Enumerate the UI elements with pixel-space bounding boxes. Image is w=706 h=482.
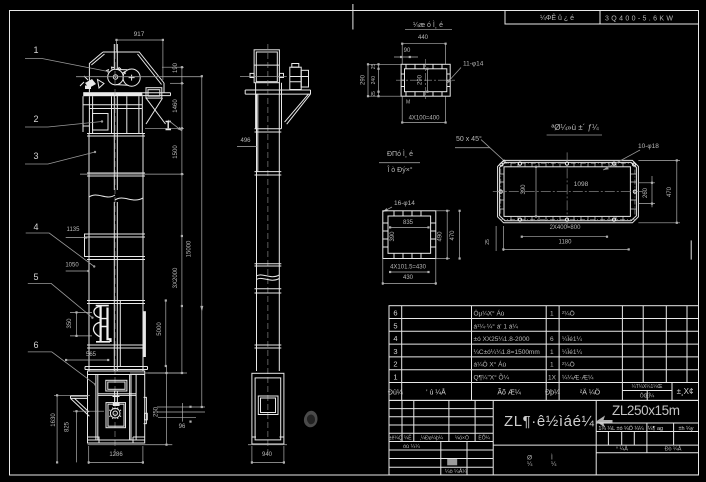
svg-text:¼: ¼ <box>551 461 557 468</box>
svg-text:¼ö ¼Å¼: ¼ö ¼Å¼ <box>445 468 467 475</box>
svg-text:M: M <box>406 100 410 106</box>
svg-text:Ðù¼: Ðù¼ <box>388 390 403 397</box>
svg-text:²Ä ¼Ö: ²Ä ¼Ö <box>580 389 601 397</box>
svg-text:óù ¼¼: óù ¼¼ <box>403 444 420 450</box>
svg-text:4X101.5=430: 4X101.5=430 <box>390 265 427 271</box>
svg-text:ÕŒÎ¼: ÕŒÎ¼ <box>640 393 655 400</box>
svg-text:²¼Ö: ²¼Ö <box>562 361 575 369</box>
svg-text:¼: ¼ <box>527 461 533 468</box>
svg-text:430: 430 <box>403 275 414 281</box>
svg-text:240: 240 <box>371 76 377 85</box>
svg-text:835: 835 <box>403 220 414 226</box>
svg-text:6: 6 <box>393 309 397 318</box>
svg-text:5000: 5000 <box>157 322 163 336</box>
svg-text:390: 390 <box>390 231 396 242</box>
svg-text:3Q400-5.6KW: 3Q400-5.6KW <box>605 16 673 23</box>
svg-text:5: 5 <box>393 321 397 330</box>
svg-text:¼C±ó¼¼1.8=1500mm: ¼C±ó¼¼1.8=1500mm <box>474 349 540 356</box>
svg-text:6: 6 <box>550 336 554 343</box>
svg-text:1: 1 <box>33 45 38 55</box>
svg-text:Ôµ¼X° Áù: Ôµ¼X° Áù <box>474 309 505 318</box>
svg-text:290: 290 <box>418 74 424 85</box>
svg-text:25: 25 <box>371 64 377 70</box>
svg-text:Q¶¼"X° Õ¼: Q¶¼"X° Õ¼ <box>474 373 510 382</box>
svg-text:15000: 15000 <box>187 240 193 257</box>
svg-text:440: 440 <box>418 35 429 41</box>
svg-text:2: 2 <box>393 360 397 369</box>
svg-text:Î ò Ðý×°: Î ò Ðý×° <box>386 165 412 174</box>
svg-text:1180: 1180 <box>559 240 573 246</box>
svg-text:1050: 1050 <box>65 263 79 269</box>
svg-text:1286: 1286 <box>109 452 123 458</box>
svg-text:25: 25 <box>371 91 377 97</box>
svg-text:470: 470 <box>667 186 673 197</box>
svg-text:° ¼Å: ° ¼Å <box>616 446 628 453</box>
svg-text:3X2000: 3X2000 <box>173 267 179 288</box>
svg-text:1500: 1500 <box>173 145 179 159</box>
svg-text:4: 4 <box>33 222 38 232</box>
svg-text:917: 917 <box>134 31 145 38</box>
svg-text:á¼Ô X° Áù: á¼Ô X° Áù <box>474 360 507 369</box>
svg-text:ÈÕ¼: ÈÕ¼ <box>478 435 490 442</box>
svg-text:1: 1 <box>550 311 554 318</box>
svg-text:Ðò ¼Å: Ðò ¼Å <box>665 446 682 453</box>
svg-text:2: 2 <box>33 114 38 124</box>
svg-text:470: 470 <box>450 230 456 241</box>
svg-text:±¸X¢: ±¸X¢ <box>677 387 694 396</box>
svg-text:2X400=800: 2X400=800 <box>550 225 582 231</box>
svg-text:490: 490 <box>438 231 444 242</box>
svg-text:1098: 1098 <box>574 181 589 188</box>
svg-text:¼æ ó Ì¸ é: ¼æ ó Ì¸ é <box>413 20 443 29</box>
svg-text:±ó XX25¼1.8-2000: ±ó XX25¼1.8-2000 <box>474 336 530 343</box>
svg-text:¼ΦÊ û ¿ é: ¼ΦÊ û ¿ é <box>540 13 574 22</box>
svg-text:ZL250x15m: ZL250x15m <box>612 403 680 418</box>
svg-text:565: 565 <box>86 352 97 358</box>
svg-text:ªØ¼»ù ±´ ƒ¼: ªØ¼»ù ±´ ƒ¼ <box>551 123 599 132</box>
svg-text:1X: 1X <box>548 375 557 382</box>
svg-text:190: 190 <box>173 62 179 73</box>
svg-text:4X100=400: 4X100=400 <box>409 116 441 122</box>
svg-text:¼Ê: ¼Ê <box>404 434 412 442</box>
svg-text:1460: 1460 <box>173 99 179 113</box>
svg-text:496: 496 <box>240 138 251 144</box>
svg-text:350: 350 <box>67 318 73 329</box>
svg-text:±h ¼y: ±h ¼y <box>679 426 694 432</box>
svg-text:3: 3 <box>33 151 38 161</box>
svg-text:96: 96 <box>179 424 186 430</box>
svg-text:¼T¼X¼1¼Œ: ¼T¼X¼1¼Œ <box>632 384 663 390</box>
svg-text:260: 260 <box>643 187 649 198</box>
svg-text:¼ö×Ö: ¼ö×Ö <box>455 435 469 442</box>
svg-text:390: 390 <box>521 184 527 195</box>
svg-text:5: 5 <box>33 272 38 282</box>
svg-text:¼¼Æ·Æ¼: ¼¼Æ·Æ¼ <box>562 375 594 382</box>
svg-text:ÐΠó Ì¸ é: ÐΠó Ì¸ é <box>387 149 413 158</box>
svg-text:90: 90 <box>404 48 411 54</box>
svg-text:1630: 1630 <box>51 413 57 427</box>
svg-text:1: 1 <box>550 362 554 369</box>
svg-text:ZL¶·ê½ìáé¼: ZL¶·ê½ìáé¼ <box>504 413 594 430</box>
svg-text:¼Ïé1¼: ¼Ïé1¼ <box>562 335 582 343</box>
svg-text:¼Ïé1¼: ¼Ïé1¼ <box>562 348 582 356</box>
svg-text:3: 3 <box>393 347 397 356</box>
svg-text:1135: 1135 <box>67 227 81 233</box>
svg-text:¼¶ ag: ¼¶ ag <box>648 426 663 432</box>
svg-text:940: 940 <box>262 452 273 458</box>
svg-text:290: 290 <box>361 74 367 85</box>
svg-text:Ãõ Æ¼: Ãõ Æ¼ <box>497 388 521 397</box>
svg-text:,¼Ðø¼þ¼: ,¼Ðø¼þ¼ <box>420 436 444 442</box>
svg-text:6: 6 <box>33 340 38 350</box>
svg-text:1¼ ¼L ±ó ¼Ö ¼¼: 1¼ ¼L ±ó ¼Ö ¼¼ <box>598 425 644 432</box>
svg-text:25: 25 <box>485 239 491 245</box>
svg-text:4: 4 <box>393 334 397 343</box>
svg-text:50 x 45°: 50 x 45° <box>456 135 482 143</box>
svg-text:Ðþ¼: Ðþ¼ <box>545 390 560 397</box>
svg-text:±ê¼Ç: ±ê¼Ç <box>389 436 403 442</box>
svg-text:825: 825 <box>65 421 71 432</box>
svg-text:10-φ18: 10-φ18 <box>638 143 659 150</box>
svg-text:²¼Ö: ²¼Ö <box>562 310 575 318</box>
svg-text:11-φ14: 11-φ14 <box>463 61 484 68</box>
svg-text:á¹¼·¼° á' 1 á¼: á¹¼·¼° á' 1 á¼ <box>474 322 519 330</box>
svg-text:' ú ¼Å: ' ú ¼Å <box>426 388 446 397</box>
svg-text:1: 1 <box>393 373 397 382</box>
svg-text:1: 1 <box>550 349 554 356</box>
svg-text:16-φ14: 16-φ14 <box>394 200 415 207</box>
